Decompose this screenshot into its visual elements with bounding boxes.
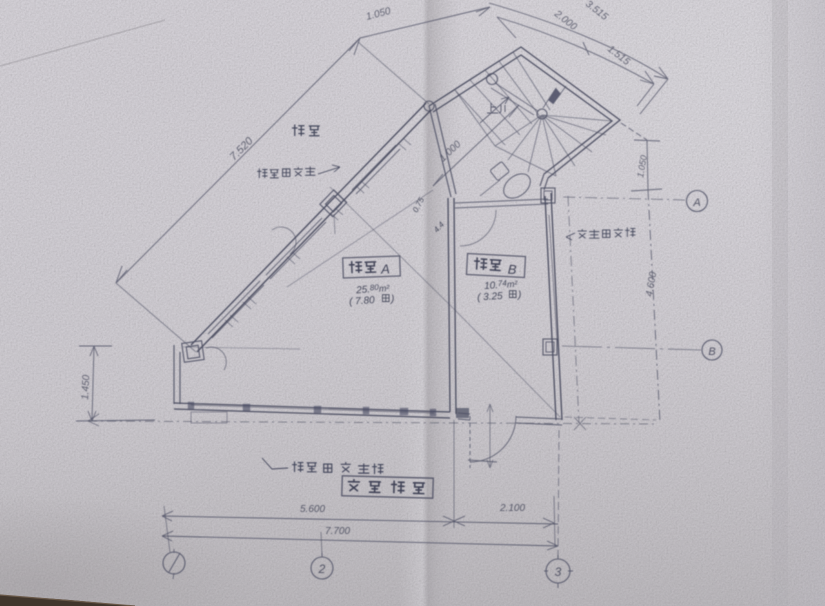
svg-text:A: A: [380, 261, 390, 276]
svg-text:2.100: 2.100: [499, 503, 525, 514]
svg-text:( 7.80: ( 7.80: [349, 295, 376, 308]
svg-text:( 3.25: ( 3.25: [477, 291, 504, 304]
svg-text:5.600: 5.600: [300, 504, 325, 515]
svg-text:): ): [390, 294, 394, 305]
svg-text:7.700: 7.700: [325, 526, 350, 537]
svg-text:1.450: 1.450: [80, 374, 92, 400]
svg-text:B: B: [507, 262, 517, 277]
svg-text:A: A: [692, 197, 700, 209]
svg-text:2: 2: [318, 562, 326, 576]
svg-text:3: 3: [555, 565, 562, 579]
svg-text:): ): [517, 290, 521, 301]
svg-text:B: B: [708, 346, 715, 358]
